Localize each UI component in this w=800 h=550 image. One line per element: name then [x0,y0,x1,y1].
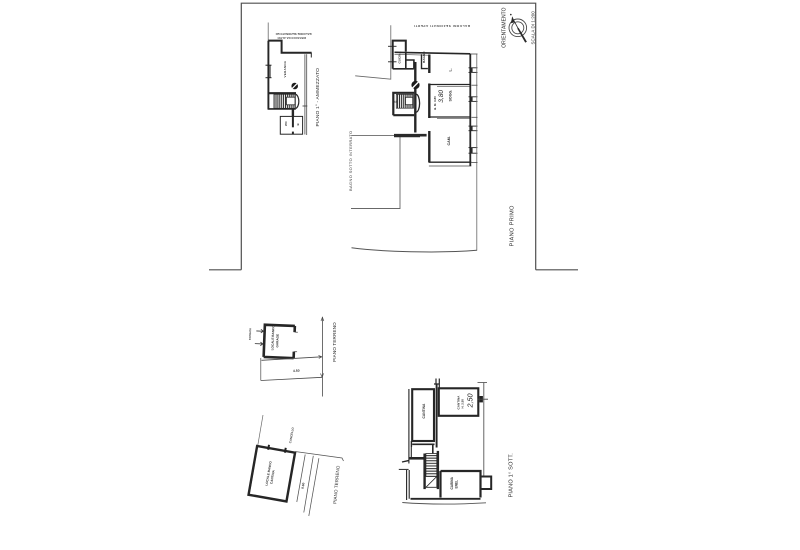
svg-text:PIANO TERRENO: PIANO TERRENO [332,322,337,362]
svg-text:PIANO TERRENO: PIANO TERRENO [332,465,340,504]
svg-text:GARAGE: GARAGE [275,334,280,348]
svg-text:ENEL: ENEL [455,480,459,489]
svg-text:PIANO 1° SOTT.: PIANO 1° SOTT. [509,453,515,498]
svg-text:BAGNO: BAGNO [422,51,426,63]
svg-text:BALCONI SEZIONATI APERTI: BALCONI SEZIONATI APERTI [414,24,470,28]
svg-text:CANCELLO: CANCELLO [288,426,295,443]
svg-text:DISTACCO DA ALTRI: DISTACCO DA ALTRI [277,36,306,40]
svg-text:CABINA: CABINA [450,476,454,489]
svg-text:2,50: 2,50 [466,394,475,409]
svg-text:ENTRATA: ENTRATA [248,328,252,340]
svg-text:B: B [296,123,300,125]
svg-text:H. M. 3.80: H. M. 3.80 [433,96,437,110]
svg-text:H. 2.50: H. 2.50 [461,399,465,409]
svg-text:SOGG.: SOGG. [448,90,452,102]
svg-text:VERANDA: VERANDA [283,60,287,77]
svg-text:BALCONE SEZIONATO ED: BALCONE SEZIONATO ED [276,32,312,36]
svg-text:WC: WC [284,120,288,126]
svg-text:PIANO PRIMO: PIANO PRIMO [510,205,516,246]
svg-text:4.50: 4.50 [293,369,300,373]
svg-text:PIANO 1° - AMMEZZATO: PIANO 1° - AMMEZZATO [315,68,321,127]
svg-text:CANTINA: CANTINA [422,403,426,418]
svg-text:ORIENTAMENTO: ORIENTAMENTO [502,7,508,47]
svg-text:8.60: 8.60 [301,482,306,489]
svg-text:CAM.: CAM. [447,136,451,145]
svg-text:3,80: 3,80 [438,90,445,103]
svg-text:BAGNO SOTTO INTERRATO: BAGNO SOTTO INTERRATO [348,131,353,191]
svg-text:L.: L. [449,68,453,71]
svg-text:SCALA DI 1:200: SCALA DI 1:200 [531,11,536,45]
